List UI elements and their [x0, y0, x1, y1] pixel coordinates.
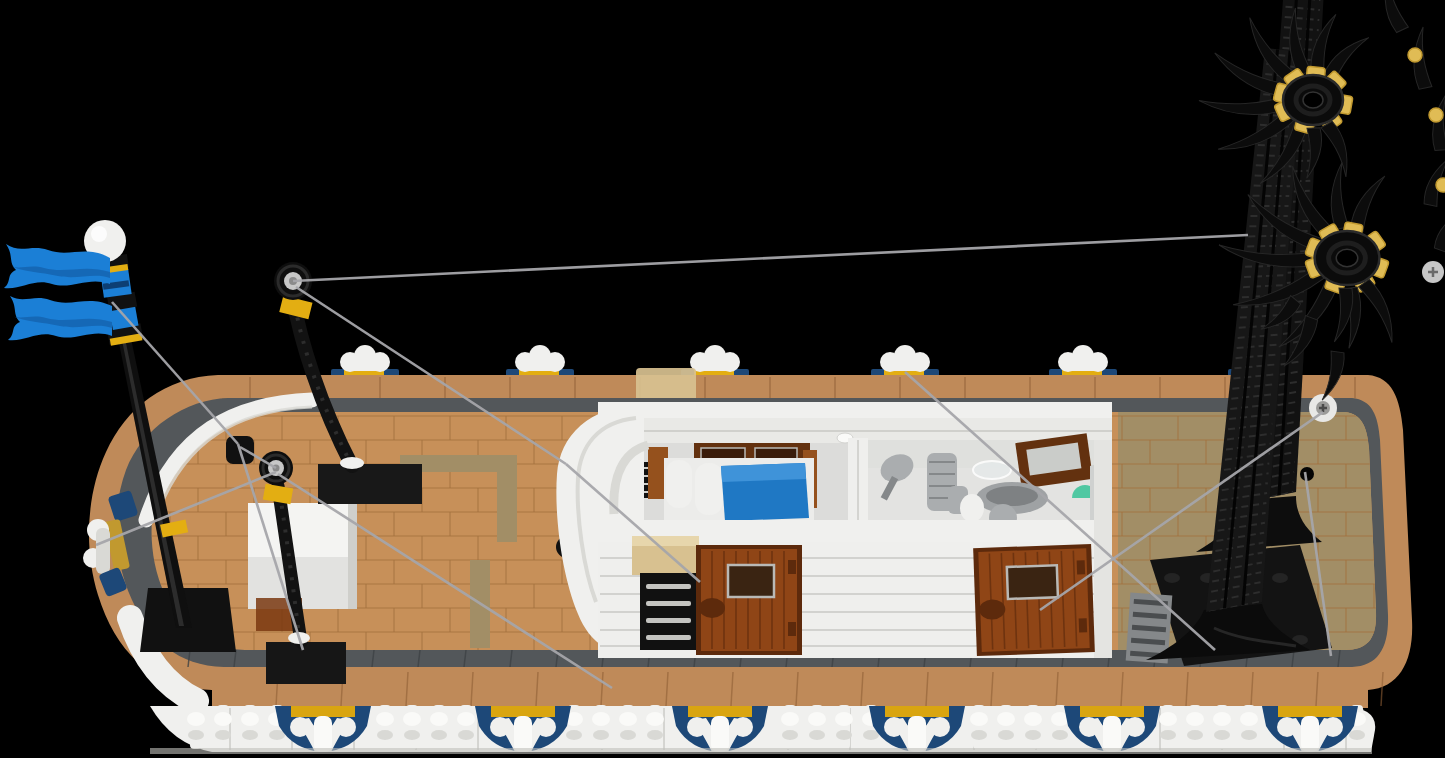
- water-tank: [960, 494, 984, 522]
- claw-crowns: [1199, 8, 1407, 403]
- claw-spike: [1372, 0, 1411, 33]
- ornament-scroll-base: [886, 358, 924, 371]
- baluster-ring: [242, 730, 258, 740]
- baluster-ring: [593, 730, 609, 740]
- door-right-window: [1007, 565, 1058, 599]
- ornament-scroll-base: [696, 358, 734, 371]
- toilet-bowl-inner: [986, 486, 1038, 506]
- ornament-center-post: [1103, 716, 1121, 752]
- cabin-door-left: [696, 545, 802, 655]
- crown-axle-hole: [1303, 92, 1323, 108]
- ornament-center-post: [1301, 716, 1319, 752]
- baluster-ring: [566, 730, 582, 740]
- door-left-hinge-bottom: [788, 622, 796, 636]
- baluster-post: [406, 705, 418, 749]
- ornament-gold-bar: [291, 706, 355, 717]
- baluster-post: [838, 705, 850, 749]
- claw-spike: [1323, 162, 1353, 229]
- shutter-slit: [646, 635, 691, 640]
- baluster-ring: [404, 730, 420, 740]
- cabin-back-wall-top: [598, 402, 1112, 418]
- baluster-ring: [620, 730, 636, 740]
- baluster-ring: [647, 730, 663, 740]
- ornament-scroll-base: [346, 358, 384, 371]
- baluster-ring: [1052, 730, 1068, 740]
- ornament-gold-bar: [688, 706, 752, 717]
- edge-gold-nub: [1408, 48, 1422, 62]
- shutter-slit: [646, 618, 691, 623]
- baluster-post: [460, 705, 472, 749]
- baluster-ring: [998, 730, 1014, 740]
- baluster-post: [1216, 705, 1228, 749]
- baluster-post: [1189, 705, 1201, 749]
- baluster-bulge: [1186, 712, 1204, 726]
- baluster-ring: [1187, 730, 1203, 740]
- shutter-slit: [646, 601, 691, 606]
- baluster-bulge: [403, 712, 421, 726]
- ornament-center-post: [514, 716, 532, 752]
- baluster-bulge: [376, 712, 394, 726]
- ornament-gold-bar: [1278, 706, 1342, 717]
- stud: [1164, 573, 1180, 583]
- blue-flags: [4, 244, 112, 340]
- baluster-ring: [1025, 730, 1041, 740]
- baluster-post: [217, 705, 229, 749]
- ornament-scroll-base: [1064, 358, 1102, 371]
- baluster-post: [595, 705, 607, 749]
- baluster-bulge: [187, 712, 205, 726]
- ornament-center-post: [908, 716, 926, 752]
- door-left-hinge-top: [788, 560, 796, 574]
- clear-dish: [973, 461, 1011, 479]
- bed-pillow-2: [695, 463, 723, 515]
- baluster-post: [1243, 705, 1255, 749]
- baluster-ring: [1160, 730, 1176, 740]
- claw-spike: [1355, 279, 1408, 343]
- bed-blanket-fold: [721, 463, 806, 482]
- mast-lamp-highlight: [91, 226, 107, 242]
- baluster-post: [190, 705, 202, 749]
- baluster-bulge: [241, 712, 259, 726]
- ornament-gold-bar: [491, 706, 555, 717]
- baluster-post: [1027, 705, 1039, 749]
- baluster-post: [244, 705, 256, 749]
- ornament-gold-bar: [1080, 706, 1144, 717]
- baluster-bulge: [781, 712, 799, 726]
- baluster-ring: [1241, 730, 1257, 740]
- baluster-bulge: [997, 712, 1015, 726]
- baluster-ring: [1214, 730, 1230, 740]
- cabin-door-right: [973, 544, 1095, 656]
- davit-1-base: [318, 464, 422, 504]
- baluster-post: [622, 705, 634, 749]
- baluster-bulge: [1213, 712, 1231, 726]
- baluster-post: [649, 705, 661, 749]
- baluster-bulge: [592, 712, 610, 726]
- baluster-ring: [836, 730, 852, 740]
- door-right-hinge-top: [1077, 560, 1085, 574]
- baluster-ring: [809, 730, 825, 740]
- baluster-bulge: [457, 712, 475, 726]
- davit-1-white-ring: [340, 457, 364, 469]
- hull-bottom-edge: [150, 748, 1372, 754]
- baluster-ring: [431, 730, 447, 740]
- stud: [1272, 573, 1288, 583]
- baluster-post: [811, 705, 823, 749]
- lego-houseboat-product-image: [0, 0, 1445, 758]
- baluster-post: [973, 705, 985, 749]
- baluster-bulge: [646, 712, 664, 726]
- baluster-bulge: [835, 712, 853, 726]
- baluster-ring: [458, 730, 474, 740]
- baluster-bulge: [619, 712, 637, 726]
- ornament-gold-bar: [885, 706, 949, 717]
- baluster-post: [379, 705, 391, 749]
- edge-gold-nub: [1429, 108, 1443, 122]
- door-left-handle: [699, 598, 725, 618]
- edge-gold-nub: [1436, 178, 1445, 192]
- baluster-bulge: [1240, 712, 1258, 726]
- bow-ornament-scroll-stem: [96, 528, 110, 574]
- shutter-slit: [646, 584, 691, 589]
- ornament-center-post: [711, 716, 729, 752]
- baluster-ring: [377, 730, 393, 740]
- baluster-bulge: [808, 712, 826, 726]
- baluster-post: [784, 705, 796, 749]
- claw-spike: [1433, 205, 1445, 252]
- baluster-post: [1054, 705, 1066, 749]
- baluster-ring: [269, 730, 285, 740]
- baluster-ring: [188, 730, 204, 740]
- baluster-bulge: [1159, 712, 1177, 726]
- baluster-ring: [1349, 730, 1365, 740]
- deck-trim-vertical: [497, 470, 517, 542]
- boat-scene: [0, 0, 1445, 758]
- door-right-hinge-bottom: [1079, 618, 1087, 632]
- baluster-ring: [215, 730, 231, 740]
- baluster-bulge: [970, 712, 988, 726]
- baluster-ring: [782, 730, 798, 740]
- ornament-center-post: [314, 716, 332, 752]
- baluster-ring: [863, 730, 879, 740]
- baluster-ring: [971, 730, 987, 740]
- davit-2-base: [266, 642, 346, 684]
- door-left-window: [728, 565, 774, 597]
- baluster-post: [1162, 705, 1174, 749]
- baluster-bulge: [214, 712, 232, 726]
- rigging-line: [293, 235, 1248, 281]
- bed-pillow-1: [666, 460, 692, 508]
- baluster-post: [433, 705, 445, 749]
- baluster-bulge: [430, 712, 448, 726]
- baluster-post: [1000, 705, 1012, 749]
- crown-axle-hole: [1336, 249, 1358, 266]
- awning-top: [632, 536, 699, 546]
- baluster-bulge: [1024, 712, 1042, 726]
- ornament-scroll-base: [521, 358, 559, 371]
